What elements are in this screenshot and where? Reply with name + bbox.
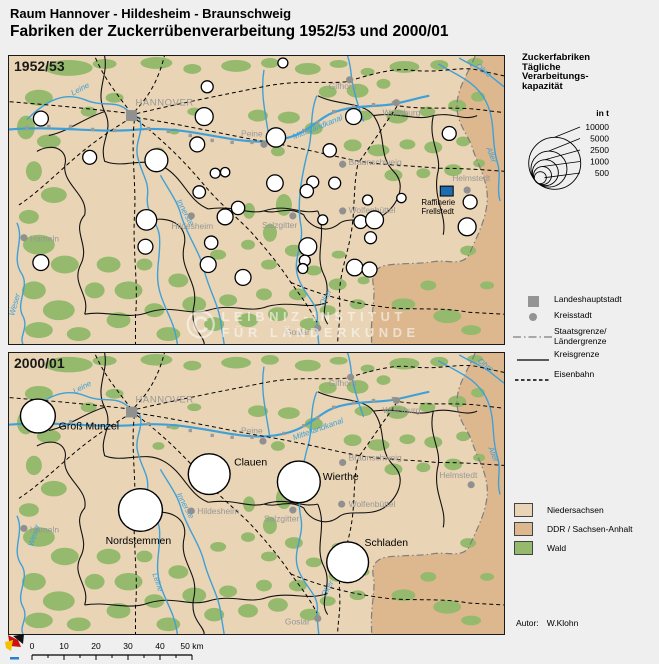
author-credit: Autor:W.Klohn: [516, 618, 578, 628]
factory-circle: [145, 149, 168, 172]
forest-patch: [25, 322, 53, 338]
city-label: Wolfsburg: [382, 405, 420, 415]
map-year-label-2000: 2000/01: [14, 355, 65, 371]
forest-patch: [256, 288, 272, 300]
canal-marker: [167, 130, 170, 133]
forest-patch: [389, 358, 419, 370]
forest-patch: [399, 139, 415, 149]
area-legend: Niedersachsen DDR / Sachsen-Anhalt Wald: [514, 503, 633, 560]
city-label: Wolfenbüttel: [349, 499, 396, 509]
factory-circle: [318, 215, 328, 225]
city-label: Braunschweig: [349, 453, 402, 463]
legend-size-value: 1000: [590, 157, 609, 167]
factory-circle: [190, 137, 205, 152]
forest-patch: [330, 357, 348, 365]
scalebar-number: 40: [155, 641, 165, 651]
factory-label: Wierthe: [323, 472, 359, 483]
city-label: Helmstedt: [439, 470, 478, 480]
forest-patch: [238, 604, 258, 618]
forest-patch: [210, 542, 226, 552]
forest-patch: [115, 281, 143, 299]
legend-leader-line: [542, 162, 580, 167]
forest-patch: [416, 462, 430, 472]
legend-leader-line: [549, 139, 580, 152]
city-label: Goslar: [285, 327, 310, 337]
forest-patch: [480, 573, 494, 581]
factory-circle: [267, 175, 284, 191]
city-label: Hildesheim: [197, 506, 239, 516]
kreisstadt-marker: [464, 186, 471, 193]
factory-circle: [33, 255, 49, 271]
forest-patch: [329, 278, 347, 290]
factory-circle: [231, 201, 244, 214]
scale-bar: 01020304050 km: [24, 638, 234, 662]
forest-patch: [424, 436, 442, 448]
city-label: Salzgitter: [264, 514, 299, 524]
map-1952-canvas: LeineMittellandkanalInnersteOhreAllerOke…: [9, 56, 504, 344]
legend-label: Niedersachsen: [547, 505, 604, 515]
legend-item-landeshauptstadt: Landeshauptstadt: [512, 295, 659, 307]
forest-patch: [136, 551, 152, 563]
forest-patch: [140, 354, 172, 366]
forest-patch: [41, 187, 67, 203]
forest-patch: [43, 300, 75, 320]
ddr-swatch: [514, 522, 533, 536]
legend-size-value: 500: [595, 168, 609, 178]
factory-circle: [193, 186, 206, 199]
legend-item-kreisstadt: Kreisstadt: [512, 311, 659, 323]
city-label: Helmstedt: [452, 173, 491, 183]
forest-patch: [350, 299, 366, 309]
factory-circle: [20, 399, 55, 433]
forest-patch: [261, 58, 279, 68]
city-label: Hameln: [30, 524, 60, 534]
canal-marker: [69, 125, 72, 128]
canal-marker: [352, 401, 355, 404]
factory-circle: [200, 257, 216, 273]
kreisstadt-marker: [338, 501, 345, 508]
canal-marker: [113, 129, 116, 132]
forest-patch: [389, 61, 419, 73]
forest-patch: [271, 441, 285, 451]
factory-circle: [397, 193, 406, 202]
refinery-square: [440, 186, 453, 196]
canal-marker: [25, 126, 28, 129]
factory-circle: [346, 109, 362, 125]
factory-circle: [220, 168, 229, 177]
factory-circle: [195, 108, 213, 126]
page-title: Fabriken der Zuckerrübenverarbeitung 195…: [10, 23, 449, 41]
forest-patch: [67, 327, 91, 341]
forest-patch: [22, 281, 46, 299]
forest-patch: [43, 591, 75, 610]
city-label: Goslar: [285, 616, 310, 626]
canal-marker: [332, 110, 335, 113]
forest-patch: [377, 375, 391, 385]
canal-marker: [316, 416, 319, 419]
forest-patch: [25, 613, 53, 629]
forest-patch: [420, 572, 436, 582]
canal-marker: [372, 103, 375, 106]
forest-patch: [22, 573, 46, 590]
factory-label: Nordstemmen: [106, 536, 172, 547]
factory-circle: [329, 177, 341, 189]
legend-item-ddr: DDR / Sachsen-Anhalt: [514, 522, 633, 536]
forest-patch: [140, 57, 172, 69]
forest-patch: [460, 246, 476, 256]
kreisstadt-marker: [188, 212, 195, 219]
factory-circle: [300, 184, 313, 197]
city-label: Peine: [241, 426, 263, 436]
kreisstadt-marker: [339, 459, 346, 466]
forest-patch: [261, 260, 277, 270]
factory-label: Groß Munzel: [59, 422, 119, 433]
forest-patch: [106, 93, 124, 103]
factory-circle: [138, 239, 153, 254]
canal-marker: [230, 141, 233, 144]
forest-patch: [399, 434, 415, 444]
forest-patch: [19, 503, 39, 517]
factory-circle: [136, 210, 157, 230]
forest-patch: [350, 590, 366, 600]
forest-patch: [187, 403, 201, 411]
canal-marker: [91, 128, 94, 131]
forest-patch: [433, 600, 461, 614]
legend-label: Kreisstadt: [554, 311, 592, 321]
niedersachsen-swatch: [514, 503, 533, 517]
factory-circle: [188, 454, 230, 495]
factory-circle: [205, 236, 218, 249]
forest-patch: [115, 573, 143, 590]
canal-marker: [372, 399, 375, 402]
scalebar-number: 0: [30, 641, 35, 651]
city-label: Wolfsburg: [382, 108, 420, 118]
dashdot-line-icon: [513, 335, 553, 339]
forest-patch: [136, 259, 152, 271]
forest-patch: [37, 134, 61, 148]
kreisstadt-marker: [289, 506, 296, 513]
legend-heading-line: kapazität: [522, 82, 590, 92]
canal-marker: [210, 434, 213, 437]
legend-leader-line: [545, 173, 580, 178]
factory-circle: [363, 195, 373, 205]
canal-marker: [250, 436, 253, 439]
kreisstadt-marker: [314, 615, 321, 622]
forest-patch: [26, 161, 42, 181]
forest-patch: [219, 586, 237, 598]
city-label: Braunschweig: [349, 157, 402, 167]
forest-patch: [41, 481, 67, 497]
forest-patch: [344, 434, 362, 446]
kreisstadt-marker: [188, 507, 195, 514]
legend-label: Landeshauptstadt: [554, 295, 622, 305]
legend-item-wald: Wald: [514, 541, 633, 555]
forest-patch: [278, 407, 300, 419]
map-year-label-1952: 1952/53: [14, 58, 65, 74]
forest-patch: [268, 307, 288, 321]
factory-circle: [442, 127, 456, 141]
forest-patch: [444, 459, 462, 471]
author-prefix: Autor:: [516, 618, 539, 628]
forest-patch: [320, 305, 336, 315]
forest-patch: [276, 194, 292, 216]
forest-patch: [183, 361, 201, 371]
factory-label: Schladen: [365, 538, 409, 549]
forest-patch: [278, 112, 300, 124]
forest-patch: [97, 257, 121, 273]
forest-patch: [67, 618, 91, 632]
kreisstadt-marker: [314, 325, 321, 332]
forest-patch: [221, 60, 251, 72]
forest-patch: [97, 549, 121, 565]
factory-circle: [201, 81, 213, 93]
forest-patch: [271, 146, 285, 156]
forest-patch: [238, 313, 258, 327]
forest-patch: [480, 281, 494, 289]
ifl-logo: [4, 634, 24, 660]
legend-size-value: 5000: [590, 134, 609, 144]
factory-circle: [277, 461, 320, 503]
factory-circle: [278, 58, 288, 68]
canal-marker: [332, 406, 335, 409]
forest-patch: [306, 557, 322, 567]
map-2000-01: LeineMittellandkanalInnersteLeineOhreAll…: [8, 352, 505, 635]
legend-label: Kreisgrenze: [554, 350, 599, 360]
factory-circle: [33, 111, 48, 126]
city-label: Gifhorn: [329, 378, 357, 388]
scalebar-number: 10: [59, 641, 69, 651]
canal-marker: [210, 139, 213, 142]
forest-patch: [241, 240, 255, 250]
canal-marker: [230, 436, 233, 439]
canal-marker: [189, 134, 192, 137]
scalebar-number: 30: [123, 641, 133, 651]
forest-patch: [168, 273, 188, 287]
factory-circle: [463, 195, 477, 209]
forest-patch: [26, 456, 42, 475]
capital-marker: [126, 407, 137, 418]
factory-circle: [83, 150, 97, 164]
forest-patch: [295, 360, 321, 372]
factory-circle: [119, 489, 163, 532]
legend-leader-line: [555, 127, 580, 137]
symbol-legend: Landeshauptstadt Kreisstadt Staatsgrenze…: [512, 295, 659, 390]
kreisstadt-marker: [20, 525, 27, 532]
capital-marker: [126, 110, 137, 121]
forest-patch: [19, 210, 39, 224]
factory-circle: [365, 232, 377, 244]
forest-patch: [51, 548, 79, 565]
canal-marker: [189, 429, 192, 432]
legend-item-niedersachsen: Niedersachsen: [514, 503, 633, 517]
canal-marker: [167, 425, 170, 428]
forest-patch: [461, 616, 481, 626]
refinery-label: Frellstedt: [421, 207, 454, 216]
forest-patch: [241, 532, 255, 542]
canal-marker: [352, 105, 355, 108]
forest-patch: [420, 280, 436, 290]
capital-square-icon: [528, 296, 539, 307]
forest-patch: [295, 63, 321, 75]
forest-patch: [368, 144, 390, 156]
canal-marker: [147, 422, 150, 425]
factory-circle: [217, 209, 233, 225]
forest-patch: [256, 580, 272, 592]
legend-label: Eisenbahn: [554, 370, 594, 380]
city-label: HANNOVER: [135, 395, 193, 405]
factory-circle: [346, 259, 363, 275]
legend-size-value: 10000: [585, 122, 609, 132]
factory-circle: [323, 144, 336, 157]
forest-patch: [461, 325, 481, 335]
forest-patch: [424, 141, 442, 153]
city-label: Salzgitter: [262, 220, 297, 230]
forest-patch: [221, 357, 251, 369]
unit-label: in t: [596, 108, 609, 118]
forest-patch: [330, 60, 348, 68]
legend-heading: Zuckerfabriken Tägliche Verarbeitungs- k…: [522, 53, 590, 91]
kreisstadt-marker: [468, 481, 475, 488]
factory-circle: [299, 238, 317, 256]
kreisstadt-marker: [289, 212, 296, 219]
capacity-size-legend: in t10000500025001000500: [512, 100, 659, 192]
legend-label: Wald: [547, 543, 566, 553]
kreisstadt-marker: [260, 141, 267, 148]
map-1952-53: LeineMittellandkanalInnersteOhreAllerOke…: [8, 55, 505, 345]
legend-size-value: 2500: [590, 145, 609, 155]
factory-label: Clauen: [234, 458, 267, 469]
kreisstadt-marker: [339, 161, 346, 168]
factory-circle: [327, 542, 369, 583]
forest-patch: [51, 256, 79, 274]
city-label: Hildesheim: [171, 221, 213, 231]
canal-marker: [47, 125, 50, 128]
solid-line-icon: [513, 358, 553, 362]
forest-patch: [358, 276, 370, 284]
map-2000-canvas: LeineMittellandkanalInnersteLeineOhreAll…: [9, 353, 504, 634]
legend-item-eisenbahn: Eisenbahn: [512, 370, 659, 386]
forest-patch: [183, 64, 201, 74]
canal-marker: [282, 432, 285, 435]
legend-label: Staatsgrenze/ Ländergrenze: [554, 327, 606, 346]
factory-circle: [458, 218, 476, 236]
forest-patch: [416, 168, 430, 178]
kreisstadt-marker: [20, 234, 27, 241]
kreisstadt-marker: [259, 438, 266, 445]
wald-swatch: [514, 541, 533, 555]
forest-patch: [261, 355, 279, 365]
forest-patch: [433, 309, 461, 323]
kreisstadt-marker: [393, 99, 400, 106]
dashed-line-icon: [513, 378, 553, 382]
factory-circle: [366, 211, 384, 229]
factory-circle: [298, 264, 308, 274]
forest-patch: [344, 139, 362, 151]
factory-circle: [235, 270, 251, 286]
city-label: Gifhorn: [329, 81, 357, 91]
forest-patch: [152, 442, 164, 450]
forest-patch: [332, 251, 346, 259]
kreisstadt-dot-icon: [529, 313, 537, 321]
legend-label: DDR / Sachsen-Anhalt: [547, 524, 633, 534]
author-name: W.Klohn: [547, 618, 579, 628]
forest-patch: [368, 439, 390, 451]
forest-patch: [261, 552, 277, 562]
refinery-label: Raffinerie: [421, 198, 455, 207]
forest-patch: [85, 574, 105, 590]
legend-item-staatsgrenze: Staatsgrenze/ Ländergrenze: [512, 327, 659, 346]
city-label: Peine: [241, 128, 263, 138]
canal-marker: [250, 141, 253, 144]
scalebar-number: 20: [91, 641, 101, 651]
kreisstadt-marker: [393, 397, 400, 404]
forest-patch: [85, 282, 105, 298]
scalebar-end-label: 50 km: [180, 641, 203, 651]
kreisstadt-marker: [339, 207, 346, 214]
forest-patch: [219, 294, 237, 306]
factory-circle: [362, 262, 377, 277]
city-label: Hameln: [30, 234, 59, 244]
canal-marker: [147, 127, 150, 130]
canal-marker: [302, 424, 305, 427]
forest-patch: [460, 538, 476, 548]
factory-circle: [266, 128, 285, 147]
forest-patch: [168, 565, 188, 579]
forest-patch: [377, 79, 391, 89]
legend-item-kreisgrenze: Kreisgrenze: [512, 350, 659, 366]
region-subtitle: Raum Hannover - Hildesheim - Braunschwei…: [10, 6, 291, 21]
factory-circle: [210, 168, 220, 178]
city-label: HANNOVER: [135, 98, 193, 109]
forest-patch: [106, 389, 124, 399]
forest-patch: [268, 598, 288, 612]
